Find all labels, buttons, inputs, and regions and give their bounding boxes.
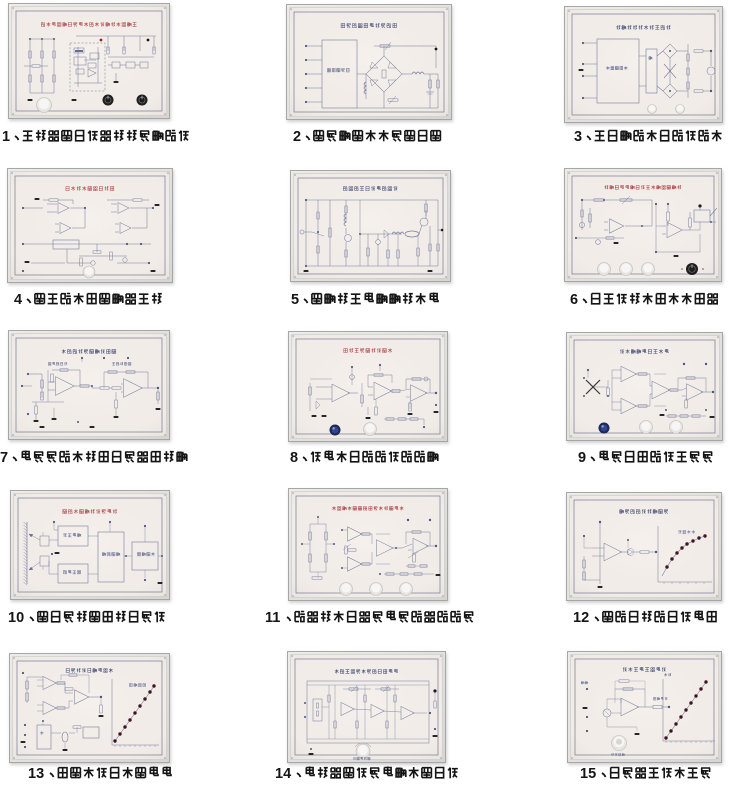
- svg-text:7: 7: [0, 450, 8, 466]
- svg-text:11: 11: [265, 610, 280, 626]
- svg-text:8: 8: [290, 450, 298, 466]
- svg-text:9: 9: [578, 450, 586, 466]
- svg-text:12: 12: [573, 610, 589, 626]
- svg-text:1: 1: [2, 129, 10, 145]
- svg-text:2: 2: [293, 129, 301, 145]
- svg-text:13: 13: [28, 766, 44, 782]
- svg-text:10: 10: [8, 610, 24, 626]
- svg-text:14: 14: [275, 766, 291, 782]
- svg-text:3: 3: [574, 129, 582, 145]
- svg-text:5: 5: [291, 292, 299, 308]
- svg-text:15: 15: [580, 766, 596, 782]
- svg-text:4: 4: [14, 292, 22, 308]
- svg-text:6: 6: [570, 292, 578, 308]
